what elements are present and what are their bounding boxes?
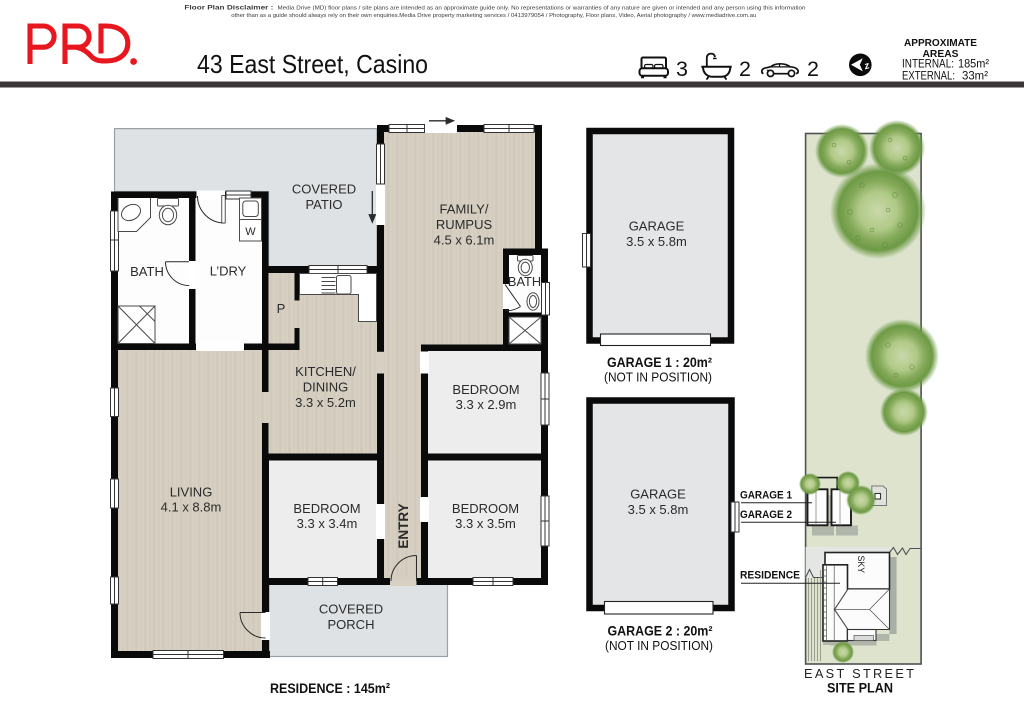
svg-text:2: 2 bbox=[807, 57, 819, 81]
svg-text:3.3 x 2.9m: 3.3 x 2.9m bbox=[456, 397, 517, 412]
svg-text:FAMILY/: FAMILY/ bbox=[440, 202, 489, 217]
svg-text:P: P bbox=[277, 301, 286, 316]
svg-text:PATIO: PATIO bbox=[305, 197, 342, 212]
svg-text:43 East Street, Casino: 43 East Street, Casino bbox=[197, 49, 428, 79]
svg-text:(NOT IN POSITION): (NOT IN POSITION) bbox=[605, 639, 713, 653]
svg-text:COVERED: COVERED bbox=[319, 602, 383, 617]
svg-text:GARAGE: GARAGE bbox=[630, 487, 686, 502]
svg-text:other than as a guide should a: other than as a guide should always rely… bbox=[231, 13, 756, 19]
svg-text:EAST STREET: EAST STREET bbox=[804, 666, 918, 681]
svg-text:SITE PLAN: SITE PLAN bbox=[827, 681, 893, 697]
svg-text:GARAGE: GARAGE bbox=[629, 219, 685, 234]
svg-text:3.5 x 5.8m: 3.5 x 5.8m bbox=[628, 502, 689, 517]
svg-text:LIVING: LIVING bbox=[170, 485, 213, 500]
svg-text:BEDROOM: BEDROOM bbox=[293, 501, 360, 516]
svg-text:L’DRY: L’DRY bbox=[210, 264, 247, 279]
svg-text:Floor Plan Disclaimer :: Floor Plan Disclaimer : bbox=[184, 5, 273, 12]
svg-text:EXTERNAL:: EXTERNAL: bbox=[902, 69, 955, 83]
svg-text:DINING: DINING bbox=[303, 380, 349, 395]
svg-text:GARAGE 1 : 20m²: GARAGE 1 : 20m² bbox=[607, 355, 712, 370]
svg-text:ENTRY: ENTRY bbox=[396, 503, 411, 548]
svg-text:3.3 x 3.5m: 3.3 x 3.5m bbox=[455, 516, 516, 531]
svg-text:W: W bbox=[245, 226, 256, 238]
svg-text:BEDROOM: BEDROOM bbox=[452, 501, 519, 516]
svg-text:2: 2 bbox=[739, 57, 751, 81]
svg-text:3: 3 bbox=[676, 57, 688, 81]
svg-text:(NOT IN POSITION): (NOT IN POSITION) bbox=[604, 371, 712, 385]
svg-text:GARAGE 2 : 20m²: GARAGE 2 : 20m² bbox=[608, 624, 713, 639]
svg-text:3.3 x 5.2m: 3.3 x 5.2m bbox=[295, 395, 356, 410]
svg-text:APPROXIMATE: APPROXIMATE bbox=[904, 38, 977, 49]
svg-text:COVERED: COVERED bbox=[292, 182, 356, 197]
svg-text:RESIDENCE: RESIDENCE bbox=[740, 570, 800, 582]
svg-text:3.5 x 5.8m: 3.5 x 5.8m bbox=[626, 234, 687, 249]
svg-text:RUMPUS: RUMPUS bbox=[436, 217, 493, 232]
svg-text:Media Drive (MD) floor plans /: Media Drive (MD) floor plans / site plan… bbox=[278, 6, 806, 12]
svg-text:4.1 x 8.8m: 4.1 x 8.8m bbox=[161, 500, 222, 515]
svg-text:4.5 x 6.1m: 4.5 x 6.1m bbox=[434, 233, 495, 248]
svg-text:3.3 x 3.4m: 3.3 x 3.4m bbox=[297, 516, 358, 531]
svg-text:BATH: BATH bbox=[130, 264, 164, 279]
svg-text:GARAGE 1: GARAGE 1 bbox=[740, 490, 792, 502]
svg-text:KITCHEN/: KITCHEN/ bbox=[295, 364, 356, 379]
svg-text:PORCH: PORCH bbox=[328, 617, 375, 632]
svg-text:SKY: SKY bbox=[856, 556, 866, 574]
svg-text:RESIDENCE : 145m²: RESIDENCE : 145m² bbox=[270, 681, 390, 697]
svg-text:33m²: 33m² bbox=[962, 69, 988, 83]
svg-text:GARAGE 2: GARAGE 2 bbox=[740, 509, 792, 521]
svg-text:BEDROOM: BEDROOM bbox=[452, 382, 519, 397]
svg-text:BATH: BATH bbox=[508, 274, 541, 289]
